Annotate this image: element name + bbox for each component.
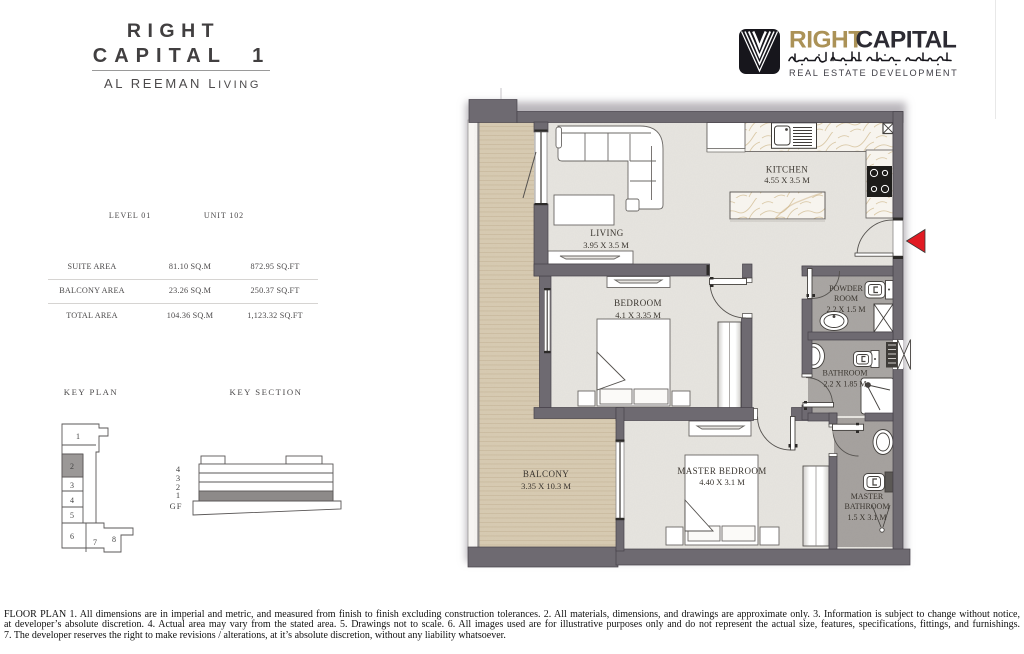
svg-text:ROOM: ROOM: [834, 294, 858, 303]
svg-text:POWDER: POWDER: [829, 284, 863, 293]
svg-text:BALCONY: BALCONY: [523, 469, 569, 479]
svg-text:7: 7: [93, 538, 97, 547]
svg-text:LIVING: LIVING: [590, 228, 623, 238]
svg-text:CAPITAL: CAPITAL: [856, 27, 957, 54]
svg-text:GF: GF: [170, 501, 183, 511]
svg-text:BATHROOM: BATHROOM: [823, 369, 868, 378]
svg-text:5: 5: [70, 511, 74, 520]
svg-text:BATHROOM: BATHROOM: [845, 502, 890, 511]
svg-text:1.5 X 3.1 M: 1.5 X 3.1 M: [848, 513, 887, 522]
svg-text:4.1 X 3.35 M: 4.1 X 3.35 M: [615, 310, 661, 320]
svg-text:MASTER: MASTER: [851, 492, 884, 501]
svg-text:6: 6: [70, 532, 74, 541]
svg-text:3: 3: [70, 481, 74, 490]
svg-text:REAL ESTATE DEVELOPMENT: REAL ESTATE DEVELOPMENT: [789, 68, 958, 78]
svg-text:4.55 X 3.5 M: 4.55 X 3.5 M: [764, 175, 810, 185]
svg-text:3.35 X 10.3 M: 3.35 X 10.3 M: [521, 481, 571, 491]
svg-text:8: 8: [112, 535, 116, 544]
svg-text:2.2 X 1.5 M: 2.2 X 1.5 M: [827, 305, 866, 314]
svg-text:RIGHT: RIGHT: [789, 27, 863, 54]
svg-text:3.95 X 3.5 M: 3.95 X 3.5 M: [583, 240, 629, 250]
svg-text:1: 1: [76, 432, 80, 441]
svg-text:MASTER BEDROOM: MASTER BEDROOM: [677, 466, 766, 476]
svg-text:BEDROOM: BEDROOM: [614, 298, 662, 308]
svg-text:4: 4: [70, 496, 74, 505]
svg-text:2: 2: [70, 462, 74, 471]
svg-text:4.40 X 3.1 M: 4.40 X 3.1 M: [699, 477, 745, 487]
svg-text:KITCHEN: KITCHEN: [766, 165, 808, 175]
svg-text:2.2 X 1.85 M: 2.2 X 1.85 M: [824, 380, 867, 389]
svg-text:1: 1: [176, 490, 180, 500]
